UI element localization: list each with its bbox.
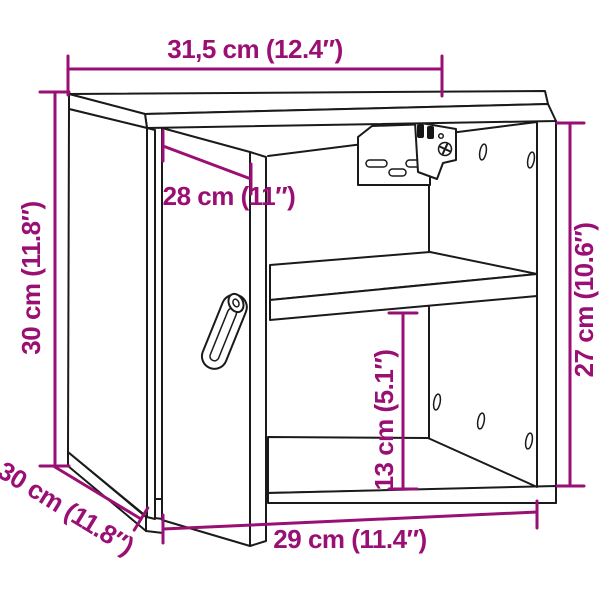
shelf-pin-hole (526, 152, 535, 169)
dimension-top-width: 31,5 cm (12.4″) (68, 34, 442, 96)
shelf-pin-hole (432, 394, 441, 411)
cabinet-dimension-diagram: 31,5 cm (12.4″) 30 cm (11.8″) 30 cm (11.… (0, 0, 600, 600)
dimension-label-lower-compartment-height: 13 cm (5.1″) (369, 350, 399, 491)
cabinet-shelf (270, 252, 537, 320)
dimension-height-left: 30 cm (11.8″) (16, 92, 69, 466)
shelf-pin-hole (476, 413, 485, 430)
dimension-label-bottom-width: 29 cm (11.4″) (273, 524, 426, 554)
bracket-hole (439, 134, 444, 139)
cabinet-top-panel (69, 91, 556, 128)
bracket-slot (366, 160, 387, 167)
dimension-label-top-width: 31,5 cm (12.4″) (167, 34, 343, 64)
shelf-pin-hole (524, 433, 533, 450)
dimension-label-interior-height-right: 27 cm (10.6″) (569, 223, 599, 378)
bracket-slot (389, 169, 406, 176)
dimension-interior-height-right: 27 cm (10.6″) (557, 123, 599, 486)
bracket-clip (417, 124, 424, 138)
dimension-label-door-width: 28 cm (11″) (163, 181, 296, 211)
dimension-label-height-left: 30 cm (11.8″) (16, 201, 46, 354)
bracket-clip (427, 126, 434, 139)
cabinet-right-panel (537, 121, 556, 503)
left-panel-outer-face (68, 109, 147, 517)
cabinet-left-panel (68, 109, 155, 519)
diagram-canvas: 31,5 cm (12.4″) 30 cm (11.8″) 30 cm (11.… (0, 0, 600, 600)
wall-mount-bracket (358, 122, 456, 185)
cabinet-drawing (68, 91, 556, 546)
shelf-pin-hole (478, 144, 487, 161)
left-panel-front-edge (147, 128, 155, 519)
door-edge-face (250, 152, 266, 546)
